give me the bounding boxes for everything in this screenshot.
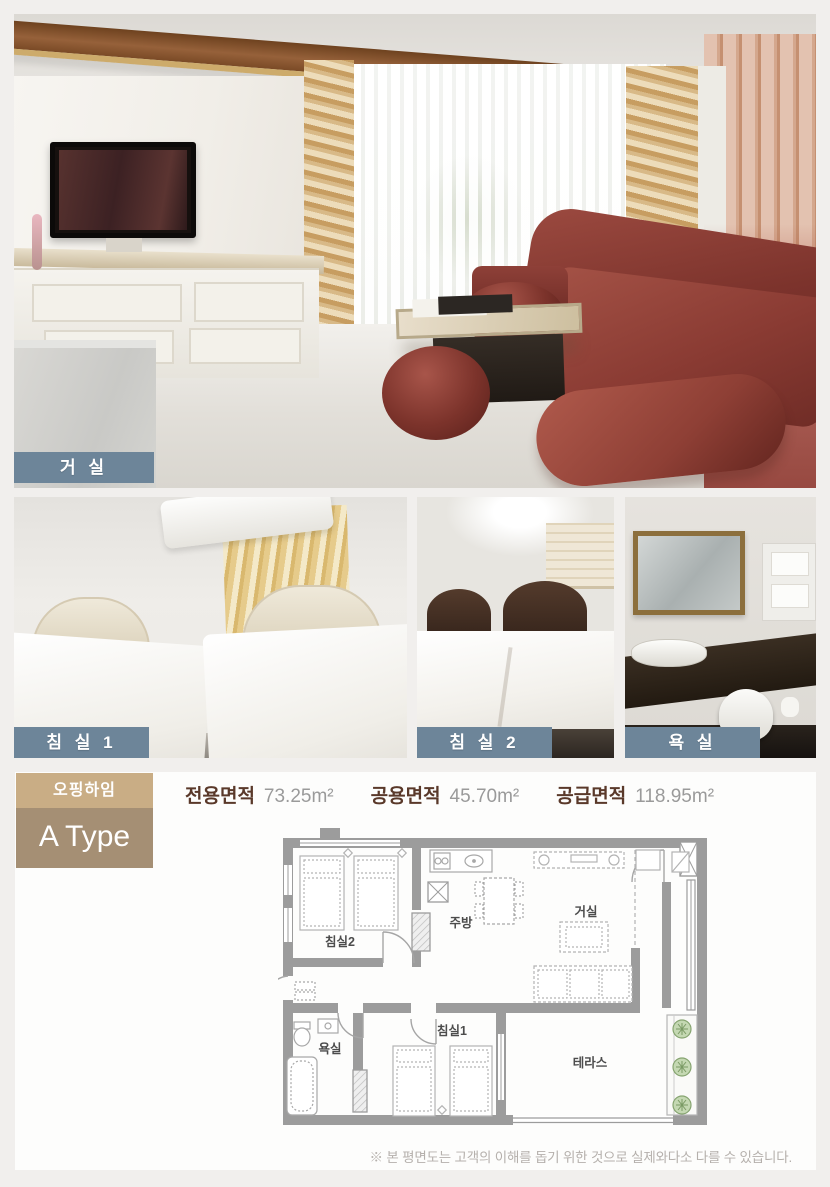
tv-shape (50, 142, 196, 238)
area-label: 전용면적 (185, 781, 255, 808)
area-label: 공용면적 (371, 781, 441, 808)
plan-bedroom1-furniture (393, 1046, 492, 1116)
area-value: 73.25m² (264, 786, 334, 808)
plan-label-bathroom: 욕실 (318, 1041, 341, 1056)
plan-terrace-planter (667, 1015, 697, 1115)
type-name: A Type (16, 808, 153, 868)
plan-label-bedroom1: 침실1 (437, 1023, 467, 1038)
cabinet-drawer (189, 328, 301, 364)
floorplan-panel: 오핑하임 A Type 전용면적 73.25m² 공용면적 45.70m² 공급… (15, 772, 816, 1170)
ottoman-shape (382, 346, 490, 440)
building-name: 오핑하임 (16, 773, 153, 808)
supply-area: 공급면적 118.95m² (556, 781, 714, 808)
bedroom1-label: 침 실 1 (14, 727, 149, 758)
type-badge: 오핑하임 A Type (16, 773, 153, 868)
area-label: 공급면적 (556, 781, 626, 808)
area-figures: 전용면적 73.25m² 공용면적 45.70m² 공급면적 118.95m² (185, 780, 714, 808)
flower-vase-shape (32, 214, 42, 270)
bathroom-label: 욕 실 (625, 727, 760, 758)
plan-label-living: 거실 (574, 904, 597, 919)
toilet-paper-shape (781, 697, 799, 717)
common-area: 공용면적 45.70m² (371, 781, 520, 808)
tv-stand-shape (106, 238, 142, 252)
bathroom-photo: 욕 실 (625, 497, 816, 758)
area-value: 118.95m² (635, 786, 714, 808)
plan-label-bedroom2: 침실2 (325, 934, 355, 949)
bedroom1-photo: 침 실 1 (14, 497, 407, 758)
plan-walls (283, 828, 707, 1125)
plan-bedroom2-furniture (300, 849, 406, 930)
exclusive-area: 전용면적 73.25m² (185, 781, 334, 808)
bedroom2-photo: 침 실 2 (417, 497, 614, 758)
cabinet-drawer (194, 282, 304, 322)
disclaimer-text: ※ 본 평면도는 고객의 이해를 돕기 위한 것으로 실제와다소 다를 수 있습… (369, 1146, 792, 1166)
bedroom1-bed-shape (202, 623, 407, 758)
bedroom2-beds-shape (417, 631, 614, 733)
tv-screen-shape (59, 150, 187, 230)
towel-shelf-shape (762, 543, 816, 621)
towel-shape (771, 552, 809, 576)
plan-label-kitchen: 주방 (449, 915, 473, 930)
bedroom2-label: 침 실 2 (417, 727, 552, 758)
room-type-page: 거 실 침 실 1 침 실 2 욕 실 (0, 0, 830, 1187)
window-shade-shape (546, 523, 614, 589)
living-room-photo: 거 실 (14, 14, 816, 488)
sink-shape (631, 639, 707, 667)
floor-plan: 침실2 주방 거실 욕실 침실1 테라스 (278, 820, 718, 1138)
living-room-label: 거 실 (14, 452, 154, 483)
gold-mirror-shape (633, 531, 745, 615)
table-items-shape (438, 294, 513, 315)
plan-label-terrace: 테라스 (573, 1055, 608, 1070)
towel-shape (771, 584, 809, 608)
area-value: 45.70m² (450, 786, 520, 808)
cabinet-drawer (32, 284, 182, 322)
